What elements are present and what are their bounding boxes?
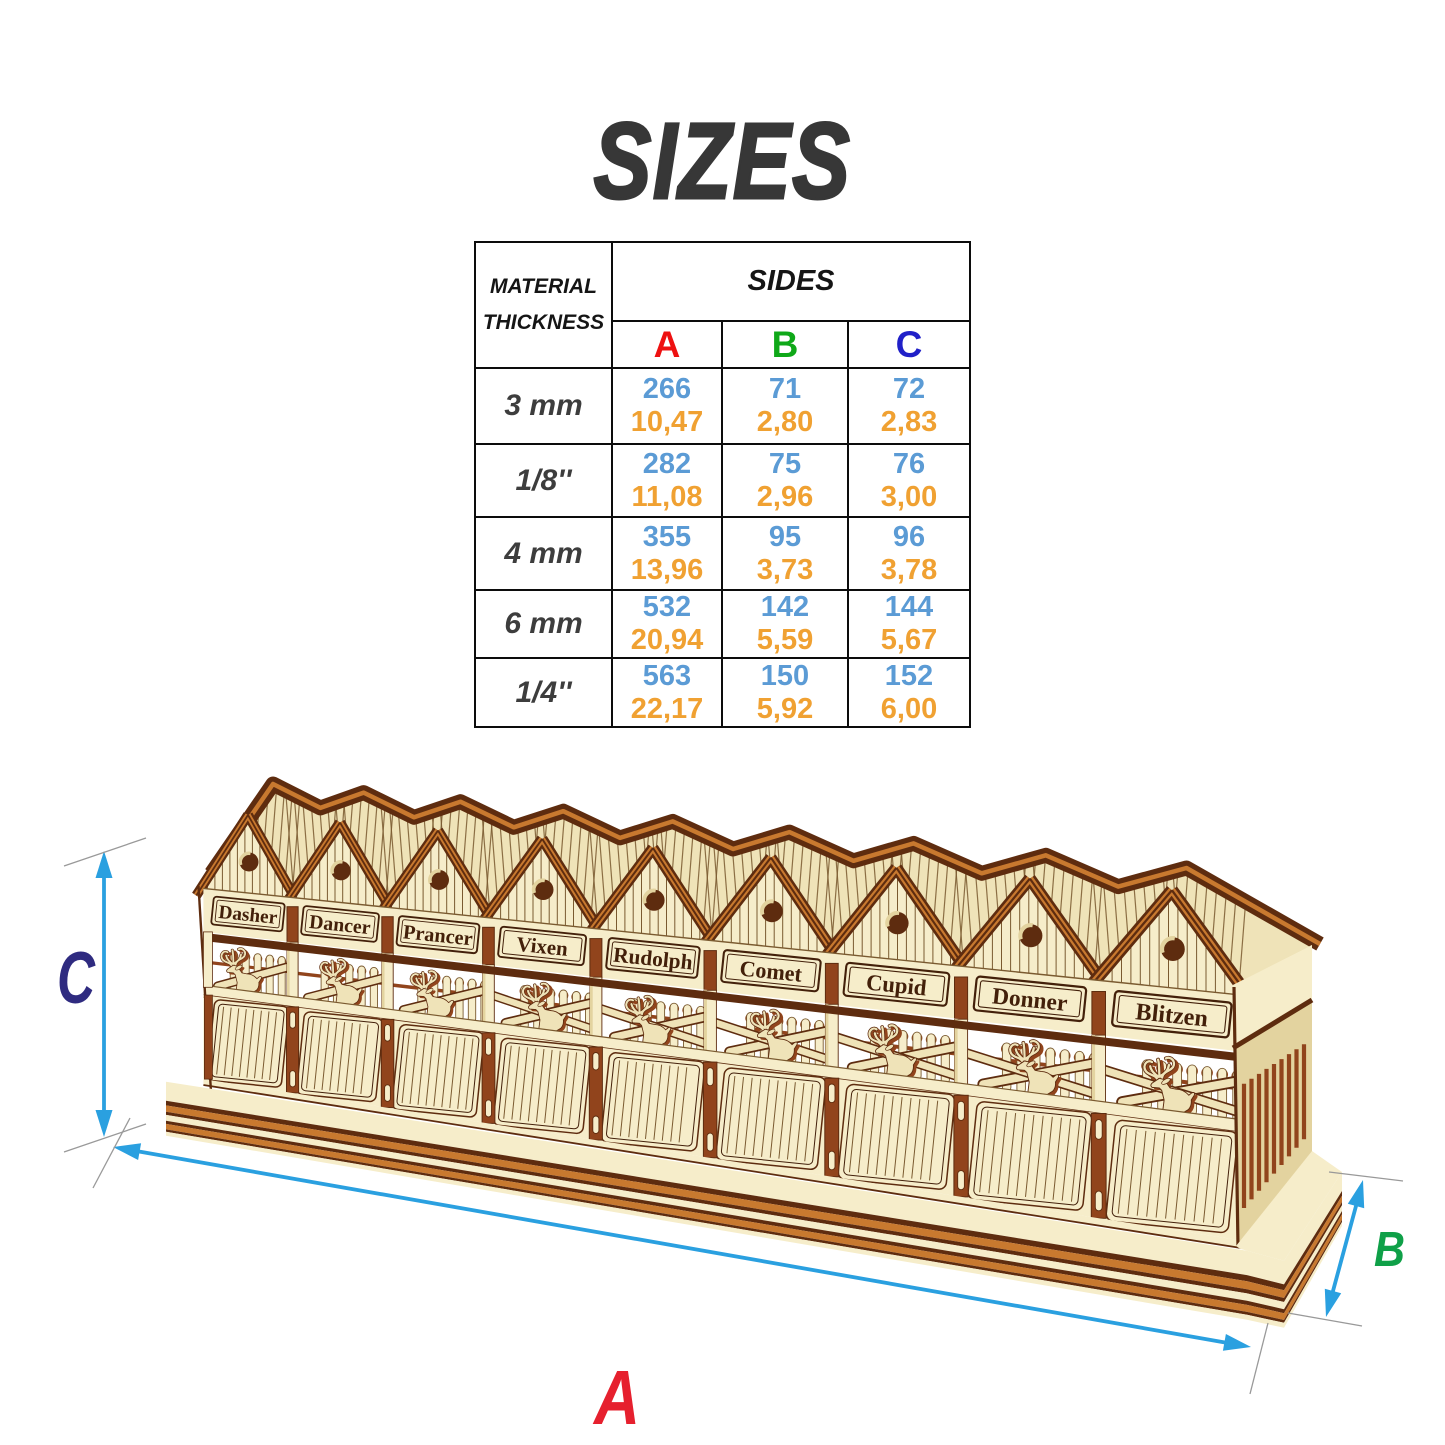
svg-text:B: B <box>1374 1223 1405 1277</box>
svg-text:C: C <box>57 938 96 1019</box>
svg-text:A: A <box>592 1355 640 1441</box>
